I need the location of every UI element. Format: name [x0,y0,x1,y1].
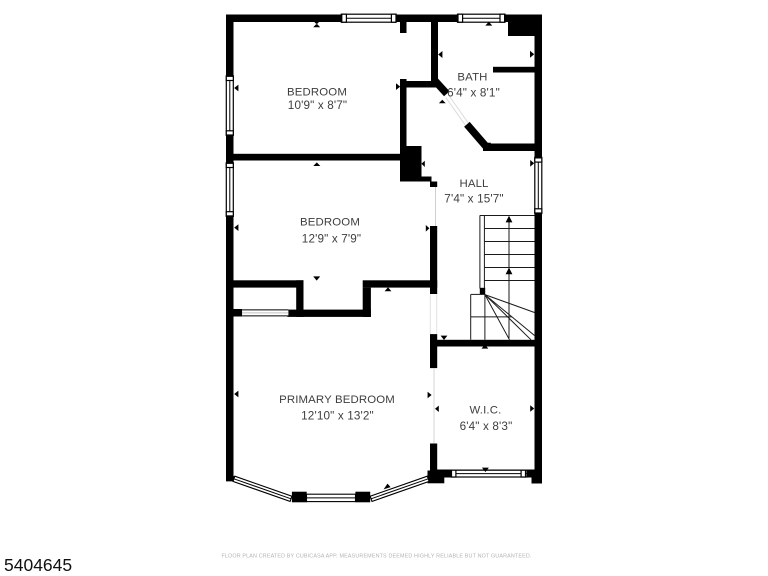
svg-text:10'9" x 8'7": 10'9" x 8'7" [288,99,347,112]
svg-text:5404645: 5404645 [4,555,72,575]
svg-text:HALL: HALL [459,178,488,190]
svg-text:7'4" x 15'7": 7'4" x 15'7" [444,193,503,206]
svg-text:6'4" x 8'1": 6'4" x 8'1" [447,87,500,100]
svg-text:BEDROOM: BEDROOM [287,87,347,99]
svg-text:12'9" x 7'9": 12'9" x 7'9" [302,233,361,246]
svg-text:FLOOR PLAN CREATED BY CUBICASA: FLOOR PLAN CREATED BY CUBICASA APP. MEAS… [221,554,531,560]
svg-text:BATH: BATH [457,72,487,84]
svg-text:BEDROOM: BEDROOM [300,217,360,229]
svg-text:W.I.C.: W.I.C. [470,405,502,417]
svg-text:PRIMARY BEDROOM: PRIMARY BEDROOM [279,394,395,406]
svg-text:6'4" x 8'3": 6'4" x 8'3" [460,420,513,433]
svg-text:12'10" x 13'2": 12'10" x 13'2" [301,410,374,423]
